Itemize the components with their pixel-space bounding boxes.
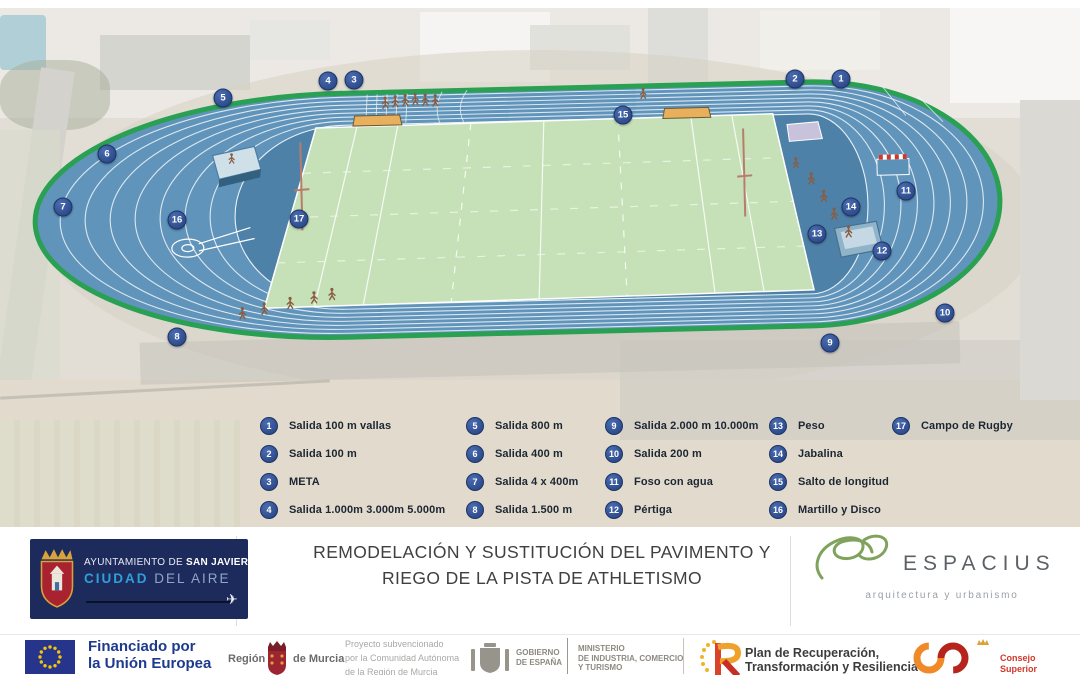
- legend-number-badge: 7: [466, 473, 484, 491]
- ayuntamiento-label: AYUNTAMIENTO DE: [84, 557, 186, 568]
- legend-number-badge: 4: [260, 501, 278, 519]
- track-marker-16: 16: [168, 211, 187, 230]
- ministerio-line3: Y TURISMO: [578, 663, 683, 673]
- legend-label: Salto de longitud: [798, 476, 889, 488]
- legend-column-2: 5Salida 800 m6Salida 400 m7Salida 4 x 40…: [466, 412, 578, 524]
- footer-funding-band: Financiado por la Unión Europea NextGene…: [0, 634, 1080, 675]
- ciudad-label: CIUDAD: [84, 571, 149, 586]
- project-title-line1: REMODELACIÓN Y SUSTITUCIÓN DEL PAVIMENTO…: [270, 539, 814, 565]
- san-javier-line1: AYUNTAMIENTO DE SAN JAVIER: [84, 557, 244, 568]
- track-marker-15: 15: [614, 106, 633, 125]
- legend-item-3: 3META: [260, 468, 445, 496]
- legend-item-7: 7Salida 4 x 400m: [466, 468, 578, 496]
- murcia-note-line1: Proyecto subvencionado: [345, 637, 459, 651]
- ministerio-line1: MINISTERIO: [578, 644, 683, 654]
- legend-number-badge: 15: [769, 473, 787, 491]
- track-marker-17: 17: [290, 210, 309, 229]
- track-marker-10: 10: [936, 304, 955, 323]
- legend-item-9: 9Salida 2.000 m 10.000m: [605, 412, 759, 440]
- legend-item-4: 4Salida 1.000m 3.000m 5.000m: [260, 496, 445, 524]
- funding-divider: [683, 638, 684, 674]
- track-marker-8: 8: [168, 328, 187, 347]
- legend-number-badge: 13: [769, 417, 787, 435]
- region-label: Región: [228, 653, 265, 665]
- eu-funding-text: Financiado por la Unión Europea: [88, 638, 211, 672]
- plan-line2: Transformación y Resiliencia: [745, 660, 918, 674]
- murcia-grant-note: Proyecto subvencionado por la Comunidad …: [345, 637, 459, 675]
- legend-number-badge: 8: [466, 501, 484, 519]
- legend-item-16: 16Martillo y Disco: [769, 496, 889, 524]
- legend-number-badge: 1: [260, 417, 278, 435]
- recovery-plan-text: Plan de Recuperación, Transformación y R…: [745, 646, 918, 674]
- legend-item-8: 8Salida 1.500 m: [466, 496, 578, 524]
- legend-item-17: 17Campo de Rugby: [892, 412, 1013, 440]
- track-marker-14: 14: [842, 198, 861, 217]
- legend-number-badge: 9: [605, 417, 623, 435]
- espacius-logo-glyph: [808, 532, 900, 582]
- del-aire-label: DEL AIRE: [149, 571, 231, 586]
- track-marker-11: 11: [897, 182, 916, 201]
- project-title-line2: RIEGO DE LA PISTA DE ATHLETISMO: [270, 565, 814, 591]
- legend-item-5: 5Salida 800 m: [466, 412, 578, 440]
- csd-text: Consejo Superior de Deportes: [1000, 653, 1052, 675]
- espacius-name: ESPACIUS: [903, 552, 1056, 576]
- track-marker-13: 13: [808, 225, 827, 244]
- csd-line2: Superior: [1000, 664, 1052, 675]
- legend-item-11: 11Foso con agua: [605, 468, 759, 496]
- legend-label: Salida 2.000 m 10.000m: [634, 420, 759, 432]
- footer-main-band: AYUNTAMIENTO DE SAN JAVIER CIUDAD DEL AI…: [0, 527, 1080, 634]
- legend-item-12: 12Pértiga: [605, 496, 759, 524]
- airplane-icon: ✈: [226, 591, 238, 608]
- legend-label: Salida 200 m: [634, 448, 702, 460]
- san-javier-logo: AYUNTAMIENTO DE SAN JAVIER CIUDAD DEL AI…: [30, 539, 248, 619]
- legend: 1Salida 100 m vallas2Salida 100 m3META4S…: [0, 412, 1080, 522]
- track-marker-1: 1: [832, 70, 851, 89]
- legend-column-5: 17Campo de Rugby: [892, 412, 1013, 440]
- legend-label: Peso: [798, 420, 825, 432]
- ministerio-text: MINISTERIO DE INDUSTRIA, COMERCIO Y TURI…: [578, 644, 683, 673]
- gobierno-line2: DE ESPAÑA: [516, 658, 562, 668]
- recovery-plan-logo-icon: [697, 638, 741, 675]
- legend-label: Salida 1.000m 3.000m 5.000m: [289, 504, 445, 516]
- crown-icon: [977, 639, 989, 645]
- plan-line1: Plan de Recuperación,: [745, 646, 918, 660]
- legend-item-14: 14Jabalina: [769, 440, 889, 468]
- legend-label: Salida 400 m: [495, 448, 563, 460]
- legend-item-6: 6Salida 400 m: [466, 440, 578, 468]
- airplane-trail-line: [86, 601, 232, 603]
- legend-label: META: [289, 476, 320, 488]
- murcia-note-line2: por la Comunidad Autónoma: [345, 651, 459, 665]
- legend-number-badge: 10: [605, 445, 623, 463]
- san-javier-text: AYUNTAMIENTO DE SAN JAVIER CIUDAD DEL AI…: [84, 557, 244, 586]
- espacius-subtitle: arquitectura y urbanismo: [862, 590, 1022, 601]
- funding-divider: [567, 638, 568, 674]
- legend-label: Salida 100 m: [289, 448, 357, 460]
- track-marker-9: 9: [821, 334, 840, 353]
- eu-flag-icon: [25, 638, 75, 675]
- legend-number-badge: 2: [260, 445, 278, 463]
- legend-label: Campo de Rugby: [921, 420, 1013, 432]
- legend-label: Pértiga: [634, 504, 672, 516]
- san-javier-crest-icon: [38, 547, 76, 609]
- legend-number-badge: 5: [466, 417, 484, 435]
- legend-label: Salida 800 m: [495, 420, 563, 432]
- legend-number-badge: 11: [605, 473, 623, 491]
- poster-canvas: 1234567891011121314151617 1Salida 100 m …: [0, 0, 1080, 675]
- track-marker-7: 7: [54, 198, 73, 217]
- legend-number-badge: 12: [605, 501, 623, 519]
- track-marker-3: 3: [345, 71, 364, 90]
- legend-number-badge: 14: [769, 445, 787, 463]
- legend-label: Salida 1.500 m: [495, 504, 572, 516]
- legend-label: Salida 100 m vallas: [289, 420, 391, 432]
- csd-logo-icon: [905, 639, 993, 675]
- legend-number-badge: 6: [466, 445, 484, 463]
- san-javier-name: SAN JAVIER: [186, 557, 248, 568]
- legend-item-2: 2Salida 100 m: [260, 440, 445, 468]
- legend-number-badge: 16: [769, 501, 787, 519]
- spain-coat-of-arms-icon: [470, 640, 510, 675]
- legend-item-10: 10Salida 200 m: [605, 440, 759, 468]
- eu-funding-line1: Financiado por: [88, 638, 211, 655]
- legend-column-3: 9Salida 2.000 m 10.000m10Salida 200 m11F…: [605, 412, 759, 524]
- legend-item-15: 15Salto de longitud: [769, 468, 889, 496]
- eu-funding-line2: la Unión Europea: [88, 655, 211, 672]
- track-marker-2: 2: [786, 70, 805, 89]
- track-marker-12: 12: [873, 242, 892, 261]
- track-marker-5: 5: [214, 89, 233, 108]
- legend-number-badge: 3: [260, 473, 278, 491]
- ministerio-line2: DE INDUSTRIA, COMERCIO: [578, 654, 683, 664]
- de-murcia-label: de Murcia: [293, 653, 344, 665]
- murcia-note-line3: de la Región de Murcia: [345, 665, 459, 675]
- legend-column-1: 1Salida 100 m vallas2Salida 100 m3META4S…: [260, 412, 445, 524]
- csd-line1: Consejo: [1000, 653, 1052, 664]
- gobierno-line1: GOBIERNO: [516, 648, 562, 658]
- legend-label: Martillo y Disco: [798, 504, 881, 516]
- track-marker-6: 6: [98, 145, 117, 164]
- legend-label: Jabalina: [798, 448, 843, 460]
- murcia-crest-icon: [266, 640, 288, 675]
- project-title: REMODELACIÓN Y SUSTITUCIÓN DEL PAVIMENTO…: [270, 539, 814, 591]
- legend-number-badge: 17: [892, 417, 910, 435]
- track-marker-4: 4: [319, 72, 338, 91]
- legend-item-1: 1Salida 100 m vallas: [260, 412, 445, 440]
- gobierno-espana-text: GOBIERNO DE ESPAÑA: [516, 648, 562, 667]
- legend-column-4: 13Peso14Jabalina15Salto de longitud16Mar…: [769, 412, 889, 524]
- legend-label: Salida 4 x 400m: [495, 476, 578, 488]
- legend-label: Foso con agua: [634, 476, 713, 488]
- san-javier-line2: CIUDAD DEL AIRE: [84, 571, 244, 586]
- legend-item-13: 13Peso: [769, 412, 889, 440]
